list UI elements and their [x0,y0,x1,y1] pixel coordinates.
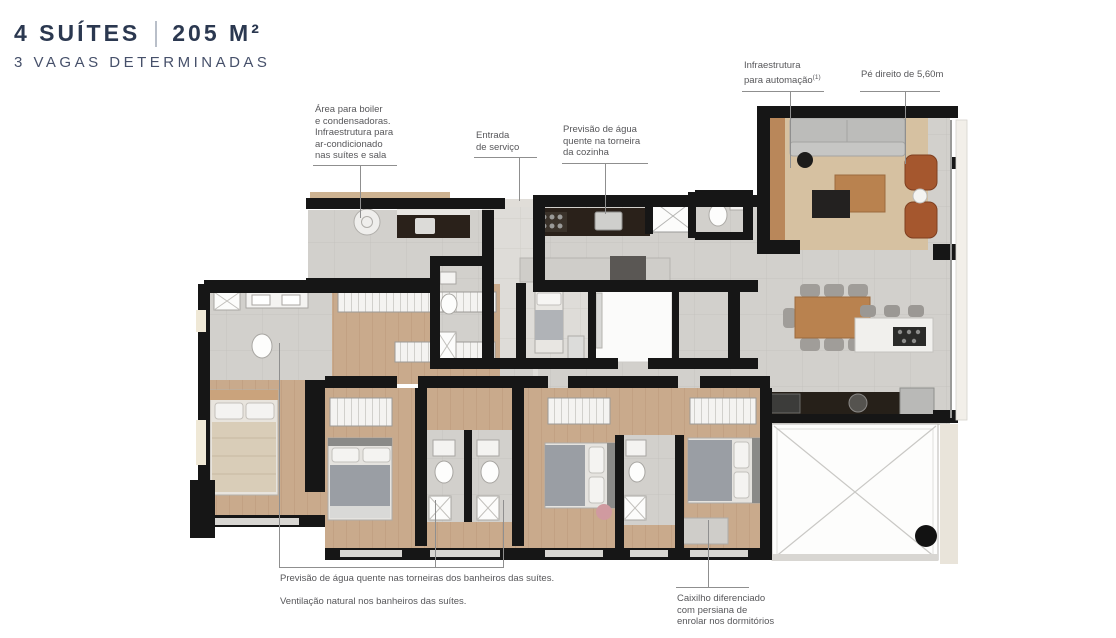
sink-icon [440,272,456,284]
hall-console [596,293,602,348]
leader-line [742,91,824,92]
pillow [215,403,243,419]
footnote-mark: (1) [813,74,821,81]
leader-line [676,587,749,588]
armchair [905,202,937,238]
wine-cooler-icon [771,394,800,413]
room-social-hall-floor [592,286,672,362]
leader-line [790,92,791,168]
dining-chair [800,338,820,351]
hall-cabinet-dark [610,256,646,283]
coffee-table-stone [812,190,850,218]
island-stool [884,305,900,317]
suite2-furniture [328,398,392,520]
pillow [363,448,390,462]
toilet-icon [629,462,645,482]
laundry-fixtures [354,208,470,238]
living-room-furniture [770,114,937,250]
ottoman [596,504,612,520]
annotation-automation: Infraestrutura para automação(1) [744,60,834,86]
dining-chair [824,284,844,297]
title-divider [155,21,157,47]
terrace-void [772,424,958,564]
cabinet [568,336,584,360]
pillow [246,403,274,419]
cabinet [682,518,728,544]
island-stool [908,305,924,317]
leader-line [435,500,436,567]
toilet-icon [709,204,727,226]
armchair [905,155,937,190]
floor-plan-svg [190,98,980,578]
pillow [734,442,749,468]
toilet-icon [441,294,457,314]
accent-table [913,189,927,203]
washer-icon [354,209,380,235]
leader-line [279,567,504,568]
leader-line [313,165,397,166]
area-label: 205 M² [172,20,262,47]
wardrobe [330,398,392,426]
side-table [797,152,813,168]
blanket [545,445,585,506]
pillow [589,447,604,473]
pillow [332,448,359,462]
suite3-furniture [545,398,615,520]
dining-chair [848,284,868,297]
pillow [734,472,749,498]
annotation-window-frame: Caixilho diferenciado com persiana de en… [677,593,797,628]
vanity [626,440,646,456]
blanket [688,440,732,501]
dining-chair [783,308,796,328]
toilet-icon [252,334,272,358]
master-bed [210,390,278,495]
dining-chair [824,338,844,351]
dining-chair [800,284,820,297]
leader-line [905,92,906,164]
annotation-ceiling-height: Pé direito de 5,60m [861,69,971,81]
annotation-service-entrance: Entrada de serviço [476,130,546,153]
page: 4 SUÍTES 205 M² 3 VAGAS DETERMINADAS [0,0,1116,638]
column-icon [915,525,937,547]
laundry-sink-icon [415,218,435,234]
wardrobe [690,398,756,424]
leader-line [519,158,520,201]
blanket [212,422,276,492]
annotation-suites-hot-water: Previsão de água quente nas torneiras do… [280,573,610,585]
wood-panel [770,114,785,244]
kitchen-island [855,318,933,352]
toilet-icon [435,461,453,483]
gourmet-counter [768,388,934,415]
pillow [589,477,604,503]
parking-label: 3 VAGAS DETERMINADAS [14,54,270,71]
annotation-boiler: Área para boiler e condensadoras. Infrae… [315,104,405,162]
leader-line [503,500,504,567]
toilet-icon [481,461,499,483]
floor-plan [190,98,980,578]
cooktop-icon [893,327,926,346]
leader-line [279,343,280,567]
leader-line [360,166,361,218]
appliance-icon [900,388,934,415]
leader-line [474,157,537,158]
page-title: 4 SUÍTES 205 M² [14,20,262,47]
leader-line [605,164,606,214]
leader-line [708,520,709,587]
annotation-natural-ventilation: Ventilação natural nos banheiros das suí… [280,596,610,608]
leader-line [860,91,940,92]
annotation-kitchen-hot-water: Previsão de água quente na torneira da c… [563,124,655,159]
wardrobe [338,292,496,312]
sofa [790,118,905,156]
island-stool [860,305,876,317]
kitchen-sink-icon [595,212,622,230]
counter-sink-icon [849,394,867,412]
vanity [477,440,499,456]
room-elevator2-floor [676,286,728,358]
wardrobe [548,398,610,424]
suites-count-label: 4 SUÍTES [14,20,140,47]
vanity [433,440,455,456]
